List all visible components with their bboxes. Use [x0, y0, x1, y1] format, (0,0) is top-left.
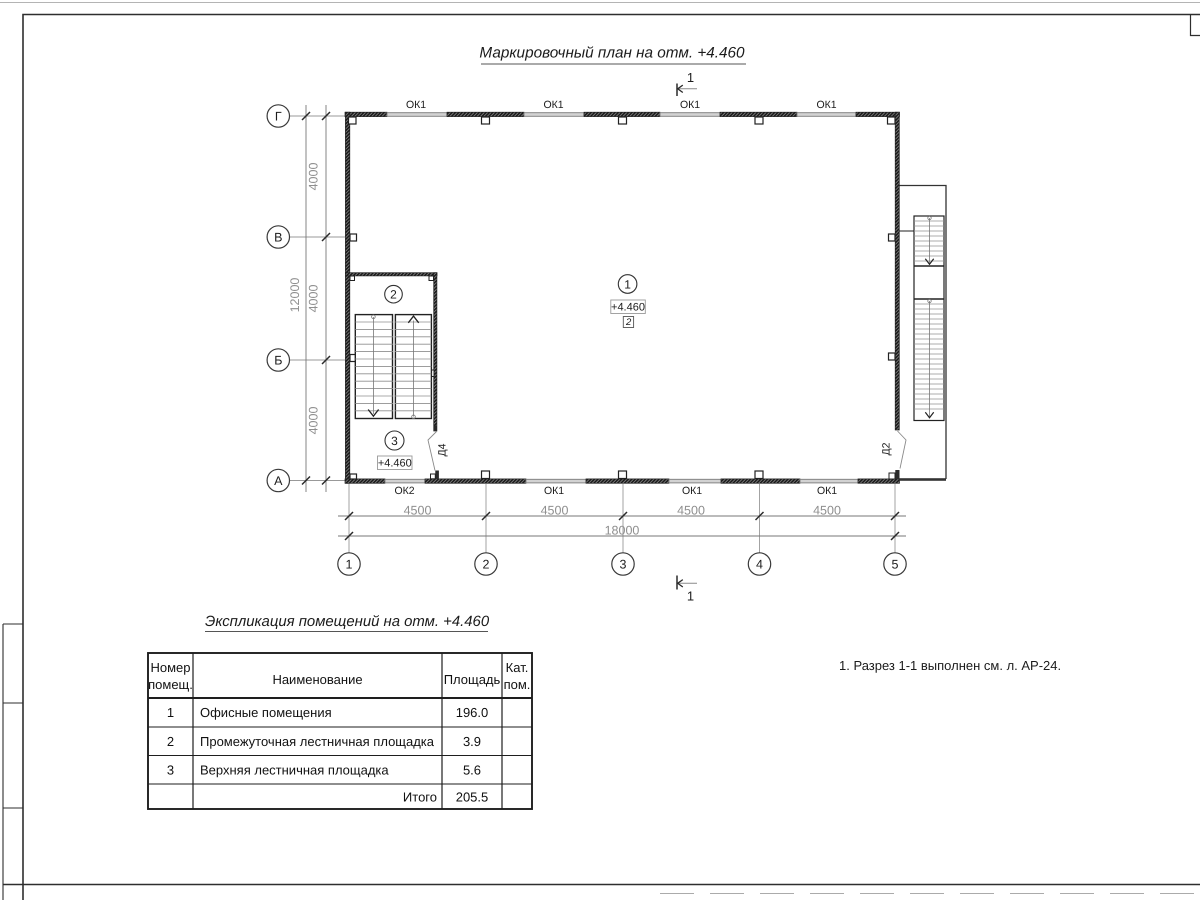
- svg-text:1: 1: [624, 278, 631, 292]
- svg-text:ОК1: ОК1: [406, 99, 426, 111]
- svg-text:помещ.: помещ.: [148, 677, 193, 692]
- svg-text:Маркировочный план на отм. +4.: Маркировочный план на отм. +4.460: [479, 45, 745, 62]
- svg-text:пом.: пом.: [504, 677, 531, 692]
- svg-text:Номер: Номер: [150, 660, 190, 675]
- svg-text:Д4: Д4: [437, 443, 449, 456]
- svg-text:1. Разрез 1-1 выполнен см. л.: 1. Разрез 1-1 выполнен см. л. АР-24.: [839, 658, 1061, 673]
- svg-text:4000: 4000: [307, 285, 321, 313]
- svg-text:ОК1: ОК1: [544, 485, 564, 497]
- svg-text:3: 3: [167, 763, 174, 778]
- svg-text:1: 1: [687, 589, 694, 604]
- svg-text:2: 2: [625, 317, 632, 328]
- svg-text:Офисные помещения: Офисные помещения: [200, 705, 332, 720]
- svg-text:+4.460: +4.460: [611, 301, 645, 313]
- svg-text:ОК1: ОК1: [680, 99, 700, 111]
- svg-text:2: 2: [167, 734, 174, 749]
- svg-text:Площадь: Площадь: [444, 672, 501, 687]
- svg-text:4000: 4000: [307, 407, 321, 435]
- svg-text:ОК1: ОК1: [682, 485, 702, 497]
- svg-text:4500: 4500: [404, 504, 432, 518]
- svg-text:ОК2: ОК2: [394, 485, 414, 497]
- svg-text:Д2: Д2: [881, 442, 893, 455]
- svg-text:4: 4: [756, 558, 763, 572]
- svg-text:3.9: 3.9: [463, 734, 481, 749]
- svg-text:А: А: [274, 474, 283, 488]
- svg-text:Кат.: Кат.: [506, 660, 529, 675]
- svg-text:Наименование: Наименование: [272, 672, 362, 687]
- svg-text:1: 1: [167, 705, 174, 720]
- svg-text:4500: 4500: [813, 504, 841, 518]
- svg-text:3: 3: [620, 558, 627, 572]
- svg-text:196.0: 196.0: [456, 705, 489, 720]
- svg-text:205.5: 205.5: [456, 790, 489, 805]
- svg-text:Итого: Итого: [403, 790, 437, 805]
- svg-text:1: 1: [346, 558, 353, 572]
- svg-text:ОК1: ОК1: [816, 99, 836, 111]
- svg-text:5: 5: [892, 558, 899, 572]
- svg-text:Б: Б: [274, 354, 282, 368]
- svg-text:Г: Г: [275, 110, 282, 124]
- svg-text:4000: 4000: [307, 163, 321, 191]
- svg-text:4500: 4500: [541, 504, 569, 518]
- svg-text:В: В: [274, 231, 282, 245]
- svg-text:Верхняя лестничная площадка: Верхняя лестничная площадка: [200, 763, 389, 778]
- svg-text:12000: 12000: [288, 278, 302, 313]
- svg-text:ОК1: ОК1: [817, 485, 837, 497]
- svg-text:18000: 18000: [605, 524, 640, 538]
- svg-text:ОК1: ОК1: [543, 99, 563, 111]
- svg-text:Промежуточная лестничная площа: Промежуточная лестничная площадка: [200, 734, 435, 749]
- svg-text:2: 2: [483, 558, 490, 572]
- svg-text:2: 2: [390, 288, 397, 302]
- svg-text:5.6: 5.6: [463, 763, 481, 778]
- svg-text:1: 1: [687, 70, 694, 85]
- svg-text:+4.460: +4.460: [378, 457, 412, 469]
- svg-text:4500: 4500: [677, 504, 705, 518]
- svg-text:3: 3: [391, 434, 398, 448]
- svg-text:Экспликация помещений на отм.: Экспликация помещений на отм. +4.460: [205, 614, 490, 630]
